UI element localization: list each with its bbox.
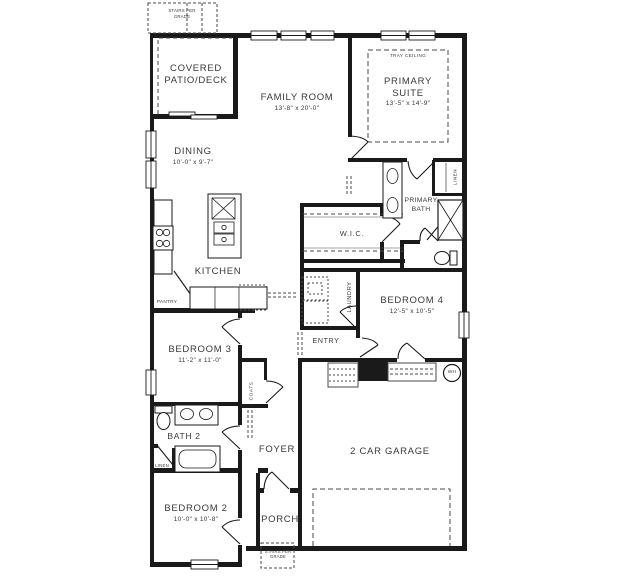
garage-bench (388, 363, 436, 381)
front-door (264, 472, 289, 489)
label-primary-suite: PRIMARY SUITE (384, 76, 432, 101)
wic-door (382, 216, 400, 242)
label-wic: W.I.C. (340, 229, 365, 239)
label-kitchen: KITCHEN (195, 266, 242, 278)
label-tray-ceiling: TRAY CEILING (390, 53, 426, 59)
primary-toilet (435, 251, 458, 265)
primary-bath-vanity (383, 162, 402, 218)
label-garage: 2 CAR GARAGE (350, 446, 430, 458)
label-primary-suite-dims: 13'-5" x 14'-9" (386, 100, 430, 108)
label-foyer: FOYER (259, 444, 295, 456)
coats-door (266, 381, 283, 403)
label-covered-patio: COVERED PATIO/DECK (164, 63, 227, 88)
floor-plan: STAIRS PER GRADE COVERED PATIO/DECK FAMI… (0, 0, 617, 582)
bath2-toilet (155, 406, 172, 430)
primary-bath-door (408, 161, 435, 179)
label-water-heater: WH (448, 370, 456, 376)
label-pantry: PANTRY (157, 300, 177, 306)
primary-suite-door (350, 136, 368, 160)
bath2-vanity (175, 405, 218, 425)
label-porch: PORCH (261, 514, 299, 526)
label-primary-bath: PRIMARY BATH (405, 197, 438, 215)
label-entry: ENTRY (312, 337, 339, 346)
linen-hall-door (156, 444, 173, 465)
bath2-door (222, 426, 240, 449)
label-family-room-dims: 13'-8" x 20'-0" (275, 105, 319, 113)
label-stairs-top: STAIRS PER GRADE (168, 8, 195, 19)
label-bedroom4-dims: 12'-5" x 10'-5" (390, 308, 434, 316)
kitchen-base-counter (190, 287, 267, 309)
bedroom3-door (222, 319, 240, 344)
label-coats: COATS (250, 382, 255, 401)
label-bath2: BATH 2 (167, 431, 200, 442)
label-family-room: FAMILY ROOM (261, 92, 334, 104)
label-bedroom2-dims: 10'-0" x 10'-8" (174, 516, 218, 524)
label-linen-hall: LINEN (155, 463, 169, 469)
washer-dryer (302, 277, 328, 323)
primary-shower (438, 200, 463, 240)
bedroom2-door (222, 520, 240, 544)
label-stairs-bottom: STAIRS PER GRADE (265, 549, 292, 560)
garage-steps (328, 363, 358, 387)
bath2-tub (175, 446, 220, 472)
floor-plan-graphics (0, 0, 617, 582)
label-dining-dims: 10'-0" x 9'-7" (173, 159, 214, 167)
label-bedroom3-dims: 11'-2" x 11'-0" (178, 357, 222, 365)
pantry-door (174, 271, 191, 295)
garage-entry-door (398, 343, 425, 359)
label-bedroom4: BEDROOM 4 (380, 295, 443, 307)
kitchen-counter (153, 200, 173, 274)
kitchen-island (208, 194, 241, 258)
label-dining: DINING (174, 146, 211, 158)
label-linen-primary: LINEN (453, 169, 458, 185)
label-bedroom3: BEDROOM 3 (168, 344, 231, 356)
garage-door (313, 489, 450, 546)
label-laundry: LAUNDRY (347, 281, 353, 312)
bedroom4-door (360, 338, 378, 357)
label-bedroom2: BEDROOM 2 (164, 503, 227, 515)
